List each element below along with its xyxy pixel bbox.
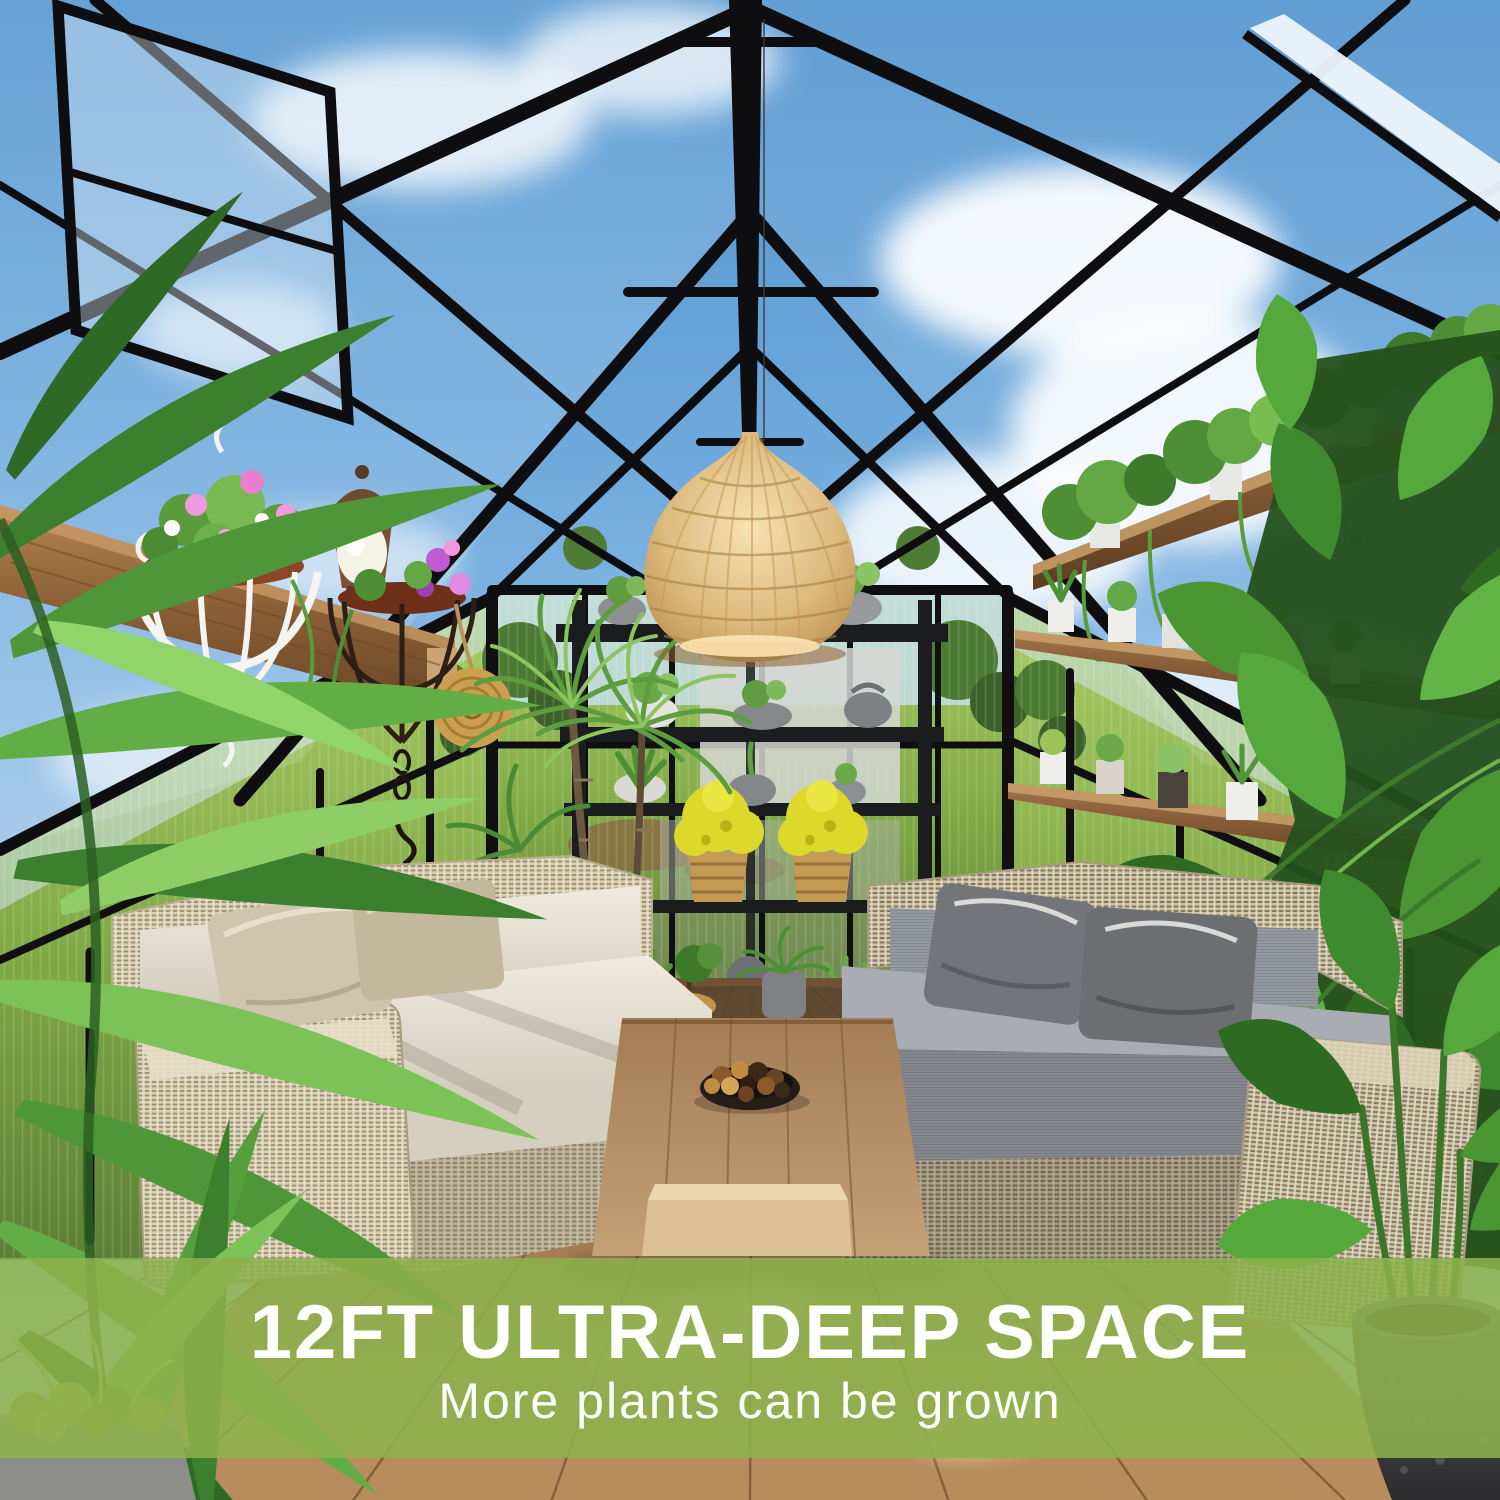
promo-banner: 12FT ULTRA-DEEP SPACE More plants can be… xyxy=(0,1258,1500,1458)
banner-subtitle: More plants can be grown xyxy=(438,1373,1061,1429)
greenhouse-product-image: 12FT ULTRA-DEEP SPACE More plants can be… xyxy=(0,0,1500,1500)
scene-canvas: 12FT ULTRA-DEEP SPACE More plants can be… xyxy=(0,0,1500,1500)
banner-title: 12FT ULTRA-DEEP SPACE xyxy=(250,1290,1251,1375)
